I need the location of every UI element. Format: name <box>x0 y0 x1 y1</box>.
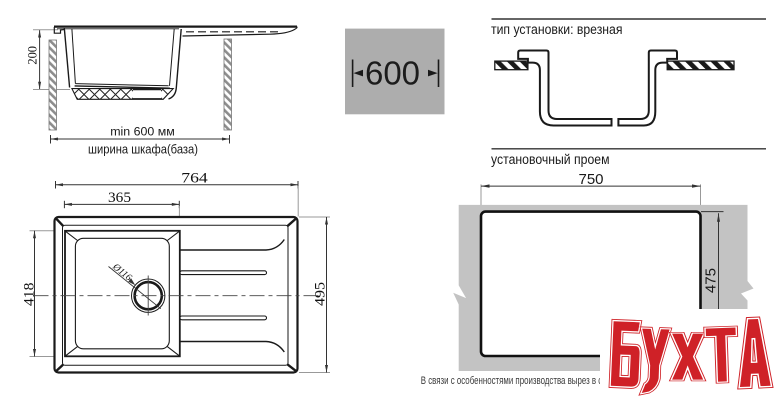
svg-text:764: 764 <box>181 171 208 187</box>
svg-text:ширина шкафа(база): ширина шкафа(база) <box>88 143 198 157</box>
svg-text:750: 750 <box>578 171 603 188</box>
svg-text:475: 475 <box>703 268 720 293</box>
svg-text:418: 418 <box>21 283 37 306</box>
svg-text:200: 200 <box>25 46 40 65</box>
svg-text:установочный проем: установочный проем <box>491 152 610 168</box>
svg-text:min 600 мм: min 600 мм <box>110 124 175 138</box>
svg-text:В связи с особенностями произв: В связи с особенностями производства выр… <box>421 375 606 387</box>
svg-text:600: 600 <box>365 55 420 92</box>
svg-text:495: 495 <box>313 282 329 306</box>
svg-text:365: 365 <box>108 190 131 206</box>
svg-text:тип установки: врезная: тип установки: врезная <box>491 22 623 38</box>
